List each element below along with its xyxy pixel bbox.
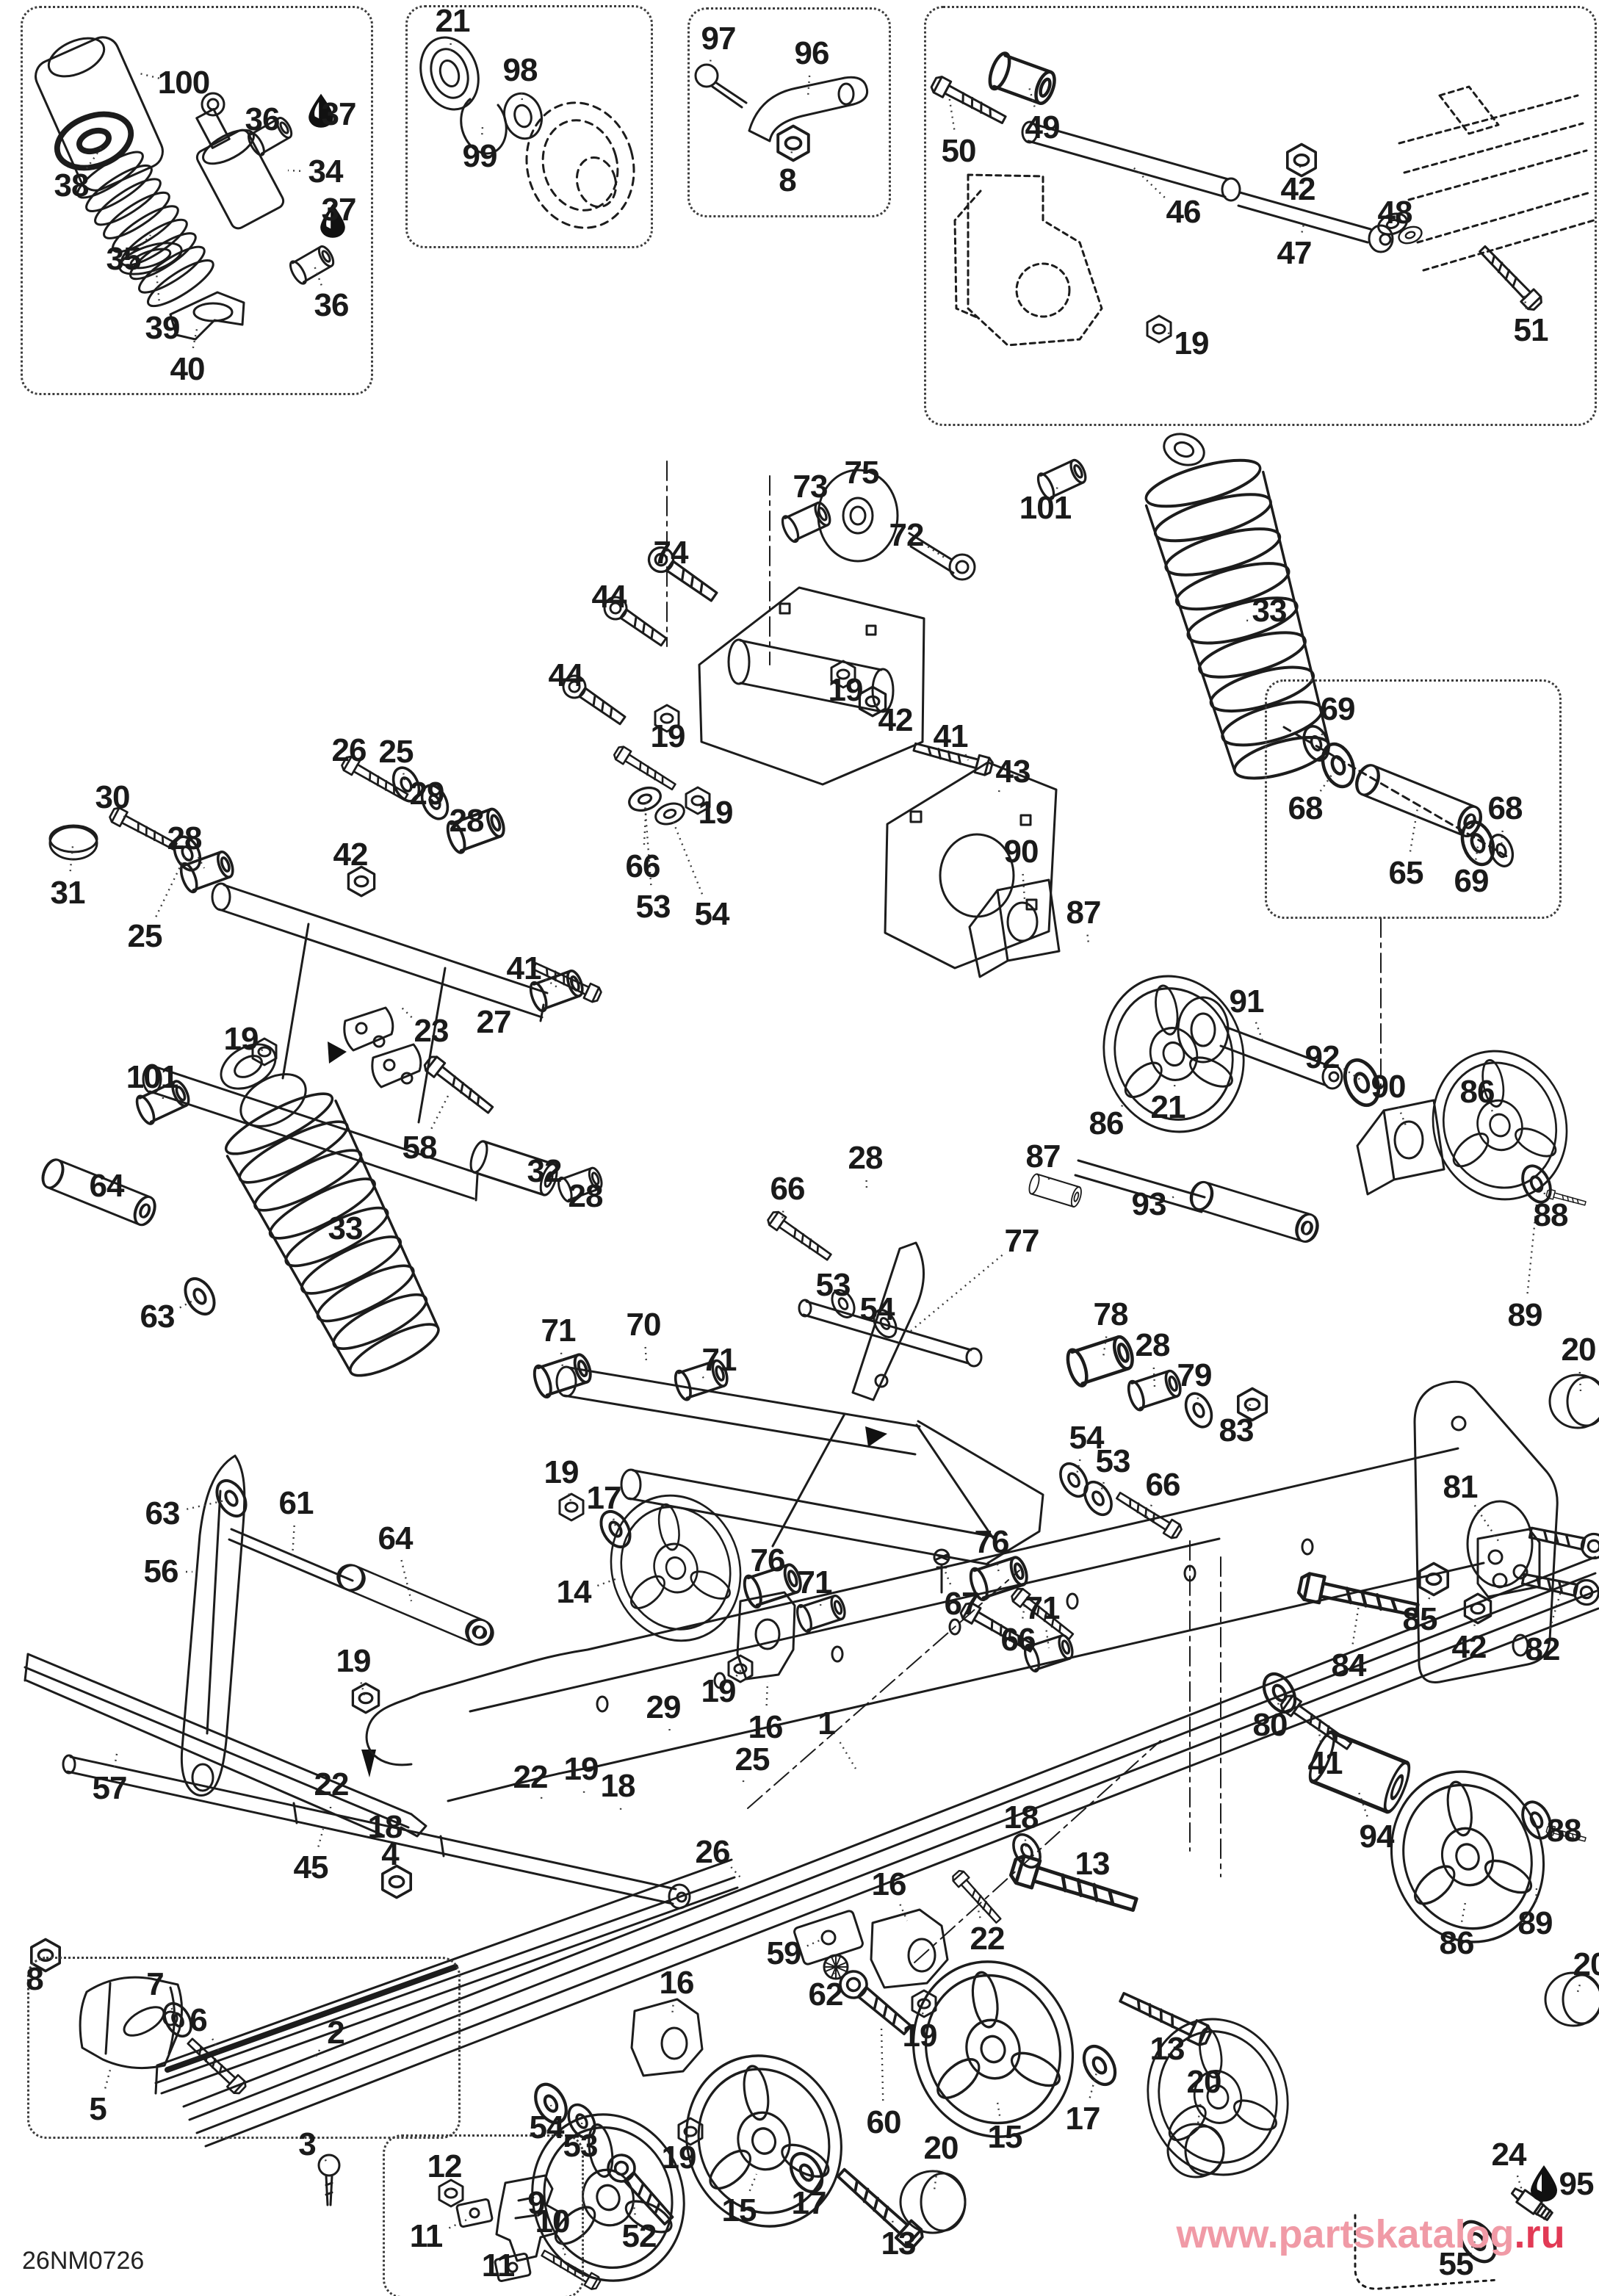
- callout-20: 20: [1562, 1334, 1596, 1366]
- callout-11: 11: [482, 2250, 515, 2282]
- leader-line: [671, 815, 702, 894]
- callout-53: 53: [1096, 1445, 1130, 1478]
- callout-53: 53: [636, 891, 671, 923]
- callout-21: 21: [1151, 1091, 1185, 1124]
- leader-line: [876, 704, 876, 707]
- leader-line: [767, 1682, 768, 1705]
- leader-line: [750, 2174, 757, 2191]
- callout-69: 69: [1454, 865, 1489, 898]
- leader-line: [1398, 1107, 1407, 1127]
- document-code: 26NM0726: [22, 2248, 144, 2273]
- leader-line: [633, 2200, 635, 2214]
- leader-line: [431, 1096, 448, 1129]
- callout-37: 37: [322, 98, 356, 131]
- callout-71: 71: [541, 1315, 576, 1347]
- callout-101: 101: [126, 1061, 178, 1094]
- callout-28: 28: [1136, 1329, 1170, 1362]
- callout-33: 33: [328, 1213, 363, 1245]
- callout-41: 41: [1308, 1747, 1343, 1780]
- callout-66: 66: [626, 851, 660, 883]
- callout-19: 19: [1174, 328, 1209, 360]
- leader-line: [361, 1683, 364, 1695]
- callout-17: 17: [792, 2187, 826, 2220]
- leader-line: [923, 2007, 923, 2014]
- callout-48: 48: [1378, 197, 1412, 229]
- callout-72: 72: [889, 519, 924, 552]
- leader-line: [807, 1939, 823, 1946]
- callout-64: 64: [378, 1523, 413, 1555]
- callout-15: 15: [722, 2195, 757, 2227]
- callout-19: 19: [829, 674, 863, 707]
- leader-line: [569, 1494, 571, 1504]
- callout-13: 13: [881, 2228, 916, 2260]
- leader-line: [1198, 1398, 1199, 1407]
- leader-line: [1462, 1902, 1465, 1922]
- callout-100: 100: [158, 67, 209, 99]
- leader-line: [1278, 1698, 1279, 1705]
- leader-line: [1359, 1792, 1368, 1816]
- leader-line: [1100, 1482, 1104, 1496]
- callout-90: 90: [1371, 1071, 1406, 1103]
- leader-line: [1103, 1337, 1106, 1357]
- callout-86: 86: [1089, 1108, 1124, 1140]
- callout-82: 82: [1526, 1633, 1560, 1666]
- callout-26: 26: [696, 1836, 730, 1869]
- callout-51: 51: [1514, 314, 1548, 347]
- leader-line: [840, 1742, 856, 1769]
- callout-18: 18: [601, 1770, 635, 1802]
- callout-28: 28: [569, 1180, 603, 1213]
- callout-71: 71: [702, 1344, 737, 1376]
- callout-17: 17: [587, 1482, 621, 1515]
- callout-7: 7: [146, 1968, 163, 2001]
- leader-line: [911, 1255, 1003, 1331]
- leader-line: [1197, 2104, 1200, 2130]
- leader-line: [782, 1211, 783, 1219]
- leader-line: [736, 1669, 742, 1676]
- leader-line: [820, 1604, 821, 1610]
- callout-19: 19: [544, 1456, 579, 1489]
- callout-15: 15: [988, 2121, 1022, 2154]
- callout-6: 6: [190, 2004, 206, 2037]
- callout-76: 76: [751, 1545, 785, 1577]
- callout-17: 17: [1066, 2103, 1100, 2135]
- callout-13: 13: [1150, 2033, 1185, 2065]
- callout-79: 79: [1177, 1360, 1212, 1392]
- leader-line: [292, 1526, 295, 1557]
- callout-68: 68: [1288, 793, 1323, 825]
- callout-30: 30: [95, 781, 130, 814]
- callout-95: 95: [1559, 2168, 1594, 2201]
- callout-64: 64: [90, 1170, 124, 1202]
- callout-53: 53: [563, 2130, 598, 2162]
- callout-35: 35: [107, 243, 141, 275]
- leader-line: [1248, 1404, 1250, 1411]
- callout-20: 20: [924, 2132, 959, 2165]
- callout-19: 19: [564, 1753, 599, 1786]
- callout-39: 39: [145, 312, 180, 344]
- leader-line: [944, 1568, 950, 1584]
- leader-line: [597, 1579, 616, 1586]
- callout-28: 28: [848, 1142, 883, 1174]
- callout-32: 32: [527, 1155, 562, 1188]
- callout-36: 36: [314, 289, 349, 322]
- callout-69: 69: [1321, 693, 1355, 726]
- callout-43: 43: [996, 756, 1030, 788]
- callout-52: 52: [622, 2220, 657, 2253]
- leader-line: [1353, 1605, 1359, 1644]
- callout-87: 87: [1026, 1141, 1061, 1173]
- callout-8: 8: [26, 1963, 43, 1996]
- callout-19: 19: [701, 1675, 736, 1708]
- callout-19: 19: [903, 2020, 937, 2052]
- leader-line: [1318, 1728, 1321, 1741]
- callout-89: 89: [1508, 1299, 1542, 1332]
- callout-27: 27: [477, 1006, 511, 1039]
- callout-13: 13: [1075, 1848, 1110, 1880]
- leader-line: [1057, 485, 1058, 489]
- callout-98: 98: [503, 54, 538, 87]
- callout-54: 54: [695, 898, 729, 931]
- callout-4: 4: [381, 1838, 398, 1871]
- leader-line: [198, 857, 204, 868]
- leader-line: [1544, 1188, 1545, 1194]
- callout-71: 71: [798, 1567, 832, 1599]
- callout-77: 77: [1005, 1225, 1039, 1257]
- leader-line: [546, 980, 558, 988]
- callout-68: 68: [1488, 793, 1523, 825]
- callout-3: 3: [298, 2129, 315, 2161]
- callout-84: 84: [1332, 1650, 1366, 1682]
- leader-line: [731, 1867, 740, 1877]
- callout-92: 92: [1305, 1041, 1340, 1074]
- leader-line: [1550, 1579, 1564, 1628]
- callout-78: 78: [1094, 1299, 1128, 1331]
- callout-88: 88: [1547, 1815, 1581, 1847]
- callout-86: 86: [1440, 1927, 1474, 1960]
- leader-line: [1025, 1840, 1026, 1847]
- leader-line: [1578, 1985, 1580, 1992]
- inset-swaybar: [924, 6, 1597, 426]
- watermark: www.partskatalog.ru: [1176, 2214, 1564, 2254]
- callout-44: 44: [592, 581, 627, 613]
- leader-line: [928, 546, 948, 560]
- callout-97: 97: [701, 23, 736, 55]
- callout-40: 40: [170, 353, 205, 386]
- callout-20: 20: [1573, 1949, 1599, 1981]
- leader-line: [1146, 1505, 1152, 1519]
- callout-22: 22: [314, 1769, 349, 1801]
- callout-42: 42: [1452, 1631, 1487, 1664]
- leader-line: [1343, 1069, 1360, 1080]
- callout-56: 56: [144, 1556, 178, 1588]
- leader-line: [646, 1347, 646, 1362]
- callout-26: 26: [332, 734, 367, 767]
- callout-83: 83: [1219, 1415, 1254, 1447]
- watermark-main: www.partskatalog: [1176, 2212, 1514, 2256]
- callout-36: 36: [245, 104, 280, 136]
- leader-line: [965, 754, 968, 760]
- callout-93: 93: [1132, 1188, 1166, 1221]
- leader-line: [1023, 874, 1025, 900]
- callout-99: 99: [463, 140, 497, 173]
- watermark-suffix: .ru: [1515, 2212, 1565, 2256]
- callout-46: 46: [1166, 196, 1201, 228]
- callout-28: 28: [450, 805, 484, 837]
- callout-22: 22: [513, 1761, 548, 1794]
- leader-line: [1088, 935, 1089, 944]
- callout-42: 42: [878, 704, 913, 737]
- leader-line: [115, 1750, 118, 1767]
- callout-29: 29: [646, 1692, 681, 1724]
- callout-20: 20: [1187, 2066, 1221, 2098]
- leader-line: [613, 1519, 616, 1526]
- leader-line: [1474, 1614, 1476, 1626]
- callout-19: 19: [662, 2142, 696, 2174]
- callout-28: 28: [167, 823, 202, 855]
- callout-74: 74: [654, 537, 688, 569]
- callout-23: 23: [414, 1015, 449, 1047]
- leader-line: [318, 1829, 323, 1846]
- callout-31: 31: [51, 877, 85, 909]
- callout-16: 16: [748, 1711, 783, 1744]
- callout-76: 76: [975, 1526, 1009, 1559]
- leader-line: [561, 1353, 563, 1368]
- leader-line: [1580, 1372, 1581, 1392]
- callout-22: 22: [970, 1923, 1005, 1955]
- callout-14: 14: [557, 1576, 591, 1609]
- leader-line: [187, 1500, 228, 1509]
- callout-101: 101: [1019, 492, 1071, 524]
- callout-41: 41: [934, 721, 968, 753]
- leader-line: [977, 1904, 980, 1918]
- callout-42: 42: [1281, 173, 1315, 206]
- callout-38: 38: [54, 170, 89, 202]
- leader-line: [71, 846, 73, 871]
- leader-line: [156, 856, 185, 917]
- callout-44: 44: [549, 660, 583, 692]
- callout-19: 19: [224, 1023, 259, 1055]
- leader-line: [997, 1564, 999, 1573]
- callout-25: 25: [379, 736, 414, 768]
- leader-line: [1475, 1505, 1498, 1541]
- callout-75: 75: [845, 457, 879, 489]
- callout-11: 11: [410, 2220, 443, 2253]
- callout-94: 94: [1360, 1821, 1394, 1853]
- leader-line: [881, 2027, 883, 2101]
- leader-line: [180, 1299, 197, 1307]
- callout-19: 19: [699, 797, 733, 829]
- callout-16: 16: [872, 1869, 906, 1901]
- callout-25: 25: [735, 1744, 770, 1776]
- callout-54: 54: [530, 2112, 564, 2144]
- callout-80: 80: [1253, 1709, 1288, 1741]
- callout-73: 73: [793, 471, 828, 503]
- leader-line: [997, 2102, 1000, 2116]
- callout-66: 66: [1001, 1624, 1036, 1656]
- callout-10: 10: [535, 2206, 570, 2238]
- callout-87: 87: [1066, 897, 1101, 929]
- callout-54: 54: [860, 1293, 895, 1326]
- callout-66: 66: [1146, 1469, 1180, 1501]
- leader-line: [688, 2133, 689, 2137]
- leader-line: [1154, 1368, 1155, 1387]
- callout-29: 29: [410, 778, 444, 810]
- callout-16: 16: [660, 1967, 694, 1999]
- leader-line: [403, 773, 405, 780]
- callout-91: 91: [1230, 986, 1264, 1018]
- callout-70: 70: [627, 1309, 661, 1341]
- callout-45: 45: [294, 1852, 328, 1884]
- callout-33: 33: [1252, 595, 1287, 627]
- callout-63: 63: [140, 1301, 175, 1333]
- callout-63: 63: [145, 1498, 180, 1530]
- leader-line: [325, 2159, 327, 2163]
- leader-line: [672, 2005, 674, 2016]
- leader-line: [1517, 2176, 1522, 2190]
- callout-65: 65: [1389, 857, 1423, 889]
- callout-18: 18: [1004, 1802, 1039, 1834]
- leader-line: [1047, 1631, 1049, 1648]
- callout-66: 66: [770, 1173, 805, 1205]
- callout-59: 59: [767, 1938, 801, 1970]
- leader-line: [834, 1970, 834, 1974]
- callout-24: 24: [1492, 2139, 1526, 2171]
- callout-19: 19: [651, 721, 685, 753]
- leader-line: [402, 1560, 411, 1601]
- callout-60: 60: [867, 2107, 901, 2139]
- callout-58: 58: [403, 1132, 437, 1164]
- leader-line: [1090, 2070, 1097, 2098]
- callout-49: 49: [1025, 112, 1060, 144]
- leader-line: [1492, 1110, 1495, 1116]
- callout-71: 71: [1025, 1592, 1060, 1625]
- callout-19: 19: [336, 1645, 371, 1678]
- callout-1: 1: [817, 1708, 834, 1740]
- leader-line: [900, 1905, 907, 1921]
- leader-line: [669, 1729, 670, 1733]
- leader-line: [1172, 1196, 1175, 1198]
- callout-61: 61: [279, 1487, 314, 1520]
- leader-line: [1174, 1081, 1175, 1086]
- leader-line: [934, 2170, 937, 2190]
- callout-85: 85: [1403, 1603, 1437, 1636]
- callout-57: 57: [93, 1772, 127, 1805]
- parts-diagram-page: 1003835394036373437362198999796850494642…: [0, 0, 1599, 2296]
- callout-34: 34: [308, 156, 343, 188]
- callout-42: 42: [333, 839, 368, 871]
- callout-89: 89: [1518, 1907, 1553, 1940]
- callout-41: 41: [507, 953, 541, 985]
- callout-62: 62: [809, 1979, 843, 2011]
- callout-81: 81: [1443, 1471, 1478, 1503]
- leader-line: [1256, 1022, 1263, 1043]
- callout-88: 88: [1534, 1199, 1568, 1232]
- callout-21: 21: [436, 5, 470, 37]
- callout-96: 96: [795, 37, 829, 70]
- callout-86: 86: [1460, 1076, 1495, 1108]
- callout-47: 47: [1277, 237, 1312, 270]
- callout-25: 25: [128, 920, 162, 953]
- callout-53: 53: [816, 1269, 851, 1302]
- callout-8: 8: [779, 165, 795, 197]
- leader-line: [1429, 1588, 1432, 1599]
- callout-12: 12: [427, 2151, 462, 2183]
- leader-line: [1076, 1459, 1080, 1478]
- callout-50: 50: [942, 135, 976, 167]
- leader-line: [1536, 1888, 1537, 1902]
- callout-5: 5: [89, 2093, 106, 2126]
- inset-wheel-insert: [405, 5, 653, 248]
- callout-67: 67: [945, 1588, 979, 1620]
- leader-line: [400, 1006, 412, 1017]
- callout-2: 2: [327, 2017, 344, 2049]
- callout-90: 90: [1004, 836, 1039, 868]
- callout-37: 37: [322, 194, 356, 226]
